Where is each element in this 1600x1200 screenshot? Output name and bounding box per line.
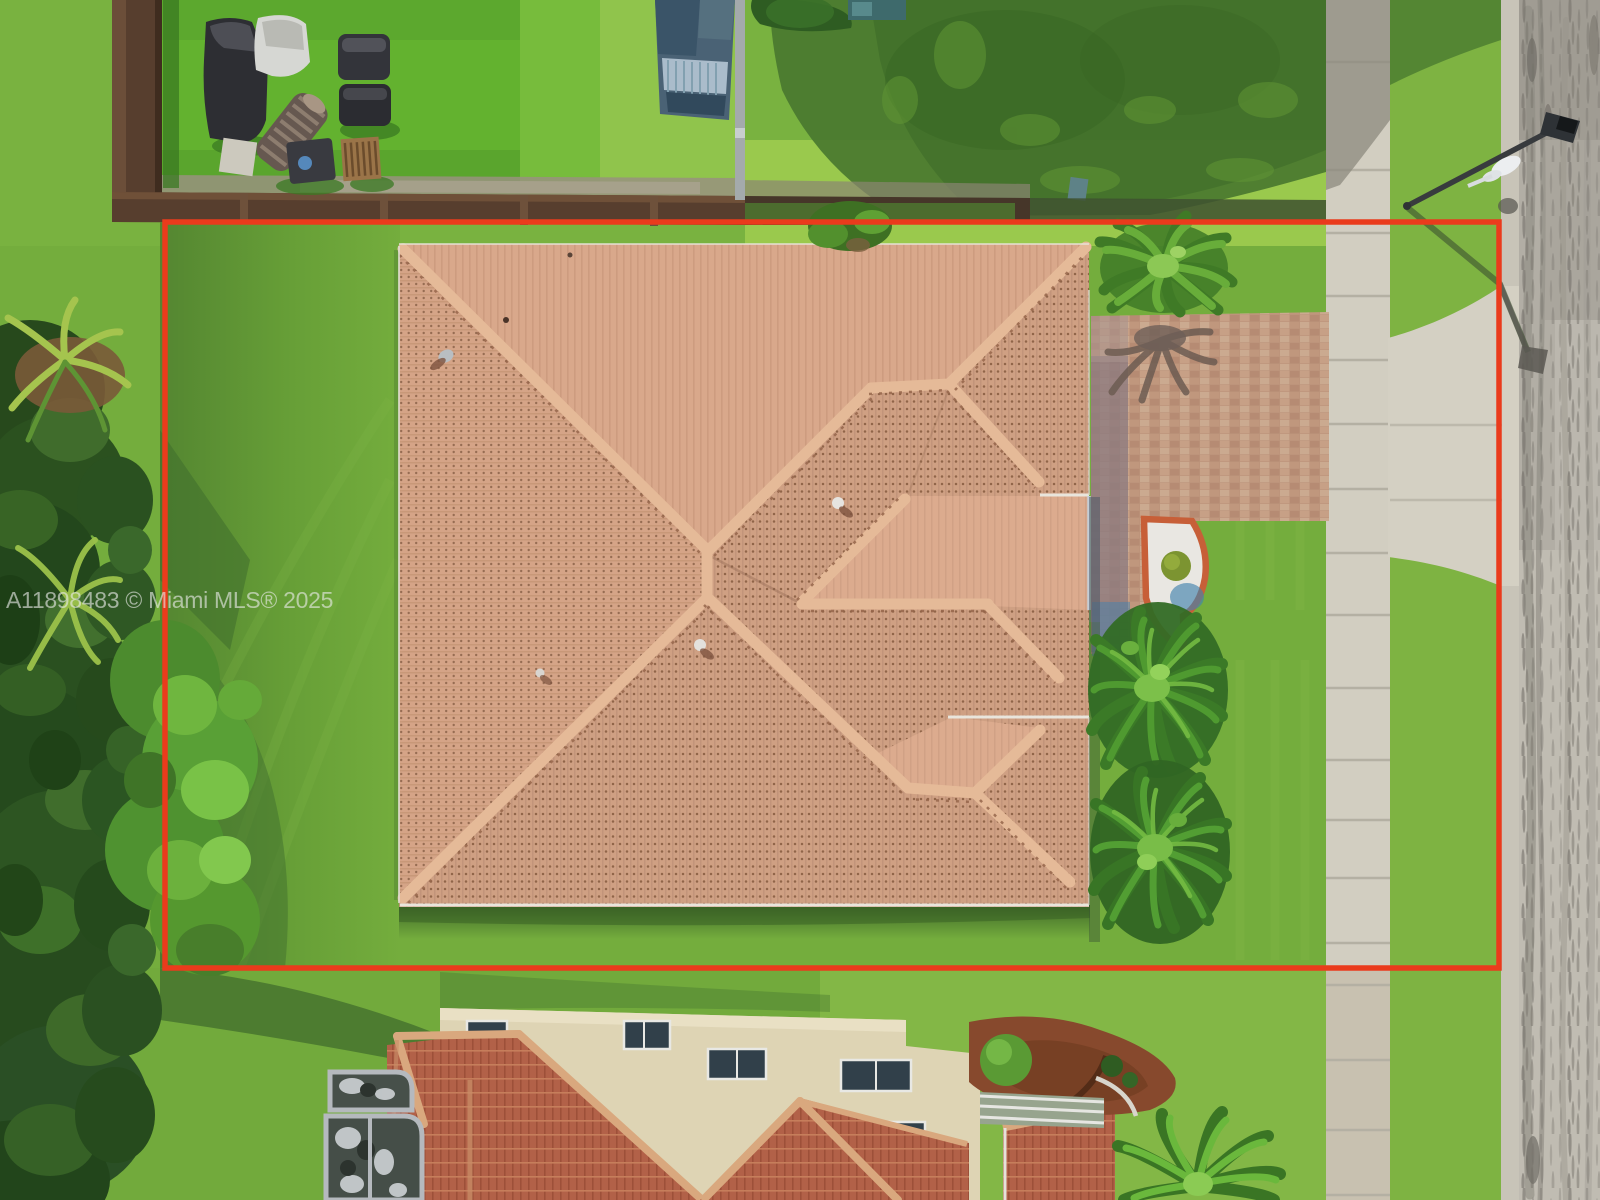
svg-text:A11898483 © Miami MLS® 2025: A11898483 © Miami MLS® 2025 xyxy=(6,587,333,613)
